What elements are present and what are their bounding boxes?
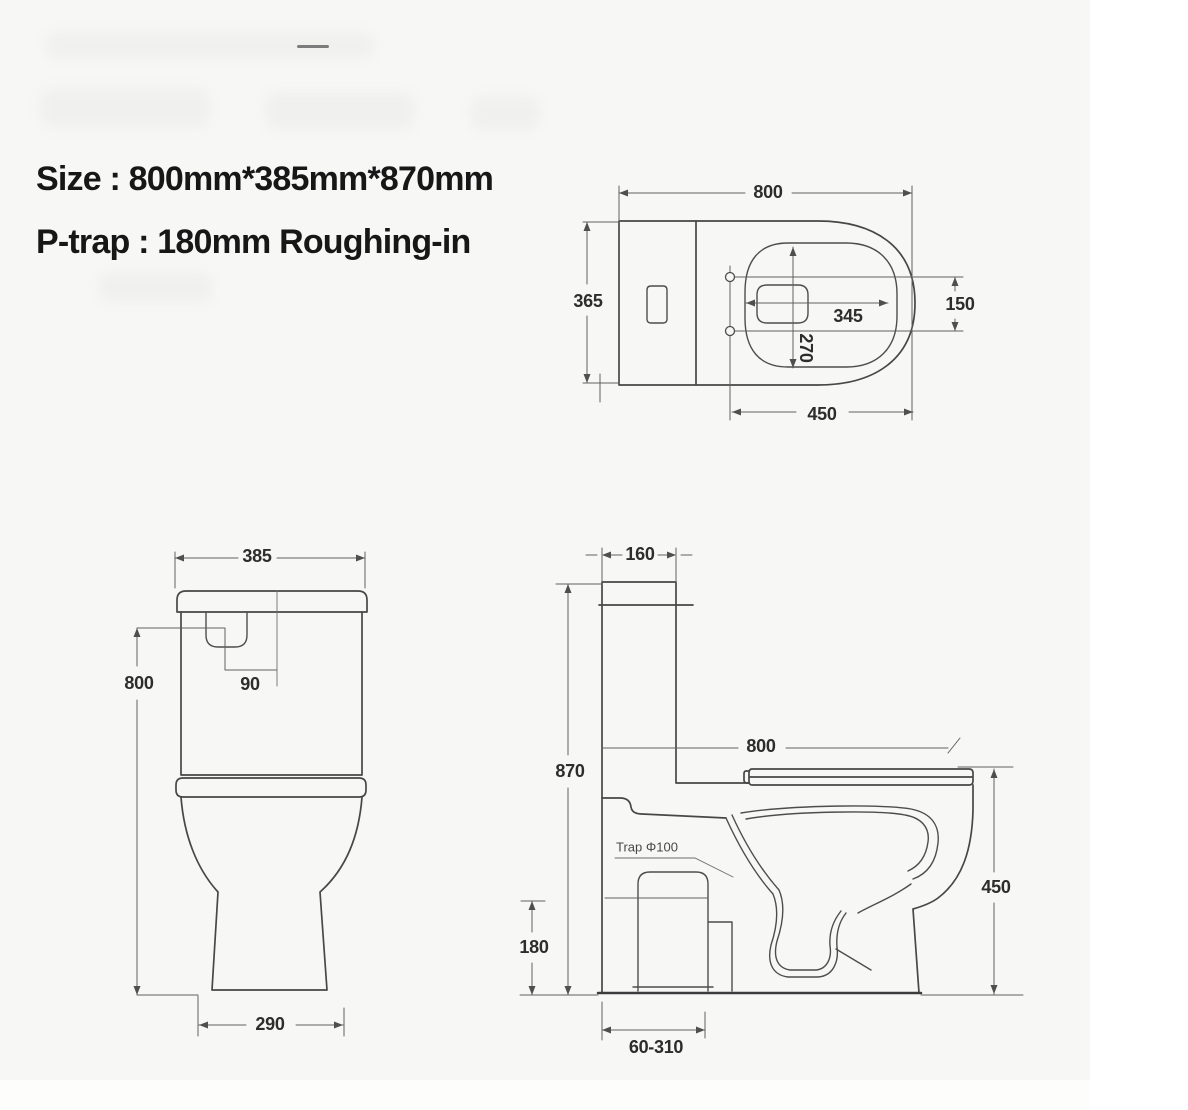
hinge-bolt-icon: [726, 273, 735, 282]
side-length-dim-label: 800: [746, 737, 775, 755]
side-view-tank: [599, 582, 749, 993]
front-view-seat-band: [176, 778, 366, 797]
spec-sheet: Size : 800mm*385mm*870mm P-trap : 180mm …: [0, 0, 1188, 1110]
side-view-trapway: [726, 815, 911, 977]
trap-diameter-label: Trap Φ100: [616, 840, 678, 855]
top-width-dim-label: 365: [573, 292, 602, 310]
top-view-outlet: [757, 285, 808, 323]
side-view-seat-lid: [744, 769, 973, 785]
button-offset-dim-label: 90: [240, 675, 259, 693]
front-view-dimension-lines: [137, 552, 365, 1036]
drawing-linework: [0, 0, 1188, 1110]
hinge-spacing-dim-label: 150: [945, 295, 974, 313]
seat-width-dim-label: 345: [833, 307, 862, 325]
side-view: [520, 548, 1023, 1040]
front-view-arrowheads: [134, 555, 366, 1029]
front-view-button-cutout: [206, 612, 247, 647]
front-view-tank: [181, 612, 362, 775]
front-height-dim-label: 800: [124, 674, 153, 692]
tank-depth-dim-label: 160: [625, 545, 654, 563]
side-view-body-profile: [602, 785, 973, 993]
front-width-dim-label: 385: [242, 547, 271, 565]
rim-height-dim-label: 450: [981, 878, 1010, 896]
roughin-range-dim-label: 60-310: [629, 1038, 683, 1056]
front-view: [134, 552, 368, 1036]
base-width-dim-label: 290: [255, 1015, 284, 1033]
trap-height-dim-label: 180: [519, 938, 548, 956]
bowl-length-dim-label: 450: [807, 405, 836, 423]
top-view-seat-ring: [745, 243, 897, 367]
top-length-dim-label: 800: [753, 183, 782, 201]
top-view-flush-button: [647, 286, 667, 323]
front-view-lid: [177, 591, 367, 612]
total-height-dim-label: 870: [555, 762, 584, 780]
front-view-bowl-pedestal: [181, 797, 362, 990]
side-view-trap-leader: [615, 858, 733, 877]
top-view: [583, 186, 963, 420]
seat-depth-dim-label: 270: [797, 333, 815, 362]
hinge-bolt-icon: [726, 327, 735, 336]
side-view-rim-section: [741, 806, 938, 879]
side-view-trap-pipe: [633, 872, 732, 991]
side-view-arrowheads: [529, 552, 998, 1034]
